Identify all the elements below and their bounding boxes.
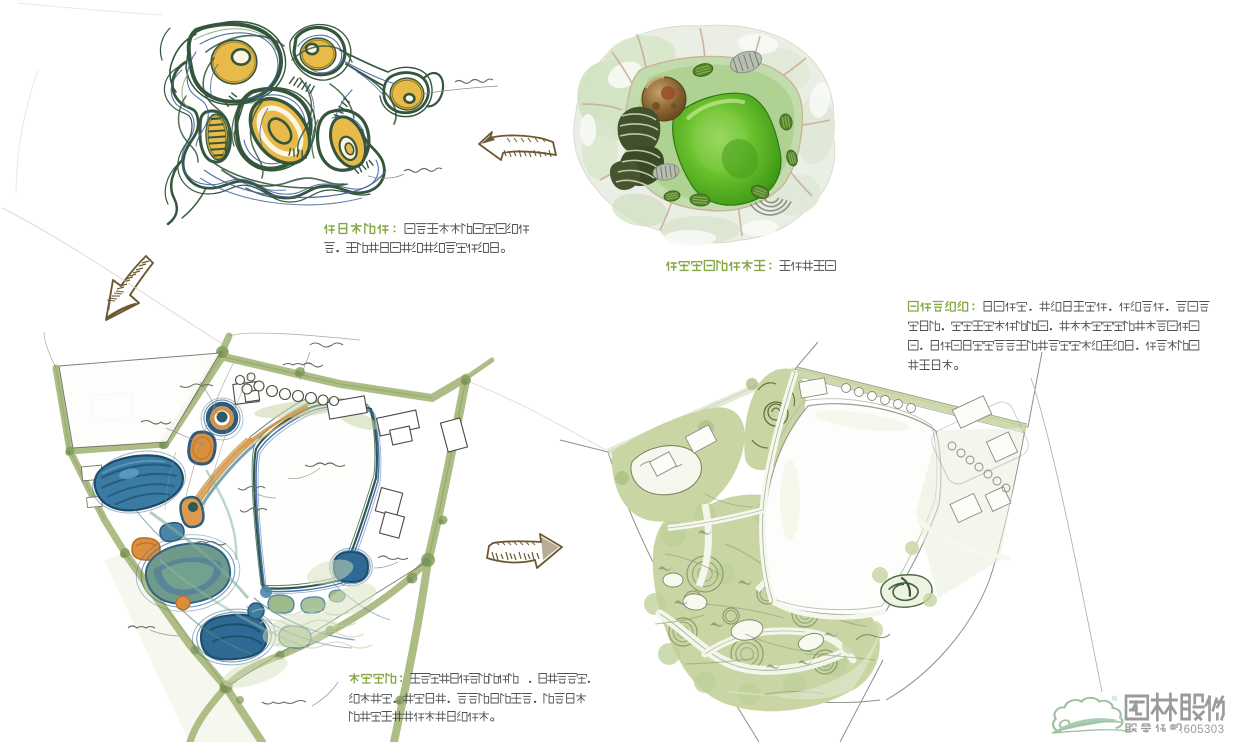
svg-text:®: ® <box>1112 695 1118 703</box>
svg-text::605303: :605303 <box>1180 724 1224 736</box>
